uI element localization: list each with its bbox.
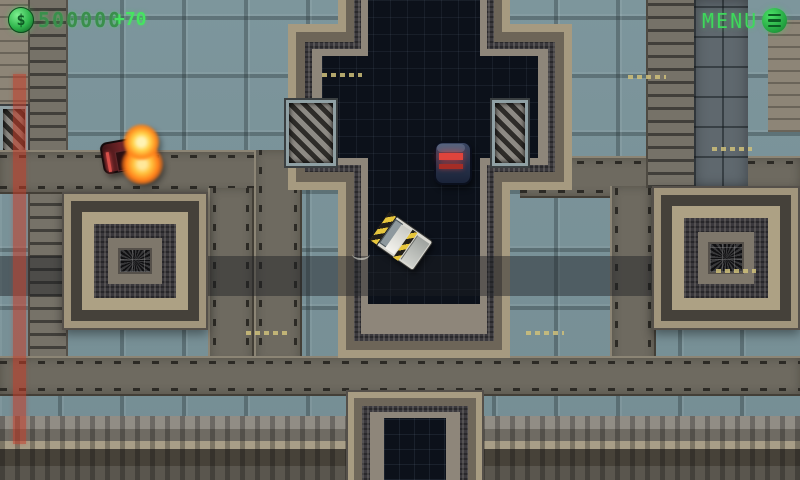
vent-structure-left [62,192,208,330]
panel-dash-marking [246,331,290,335]
enemy-car-dark [428,139,474,183]
car-light-bar [439,164,463,169]
ribbed-column-right [646,0,698,188]
hatch-vent-cross-right [492,100,528,166]
player-truck [368,208,432,272]
cross-building-bottom [346,384,484,480]
menu-hamburger-icon[interactable] [762,8,787,33]
vent-structure-right [652,186,800,330]
panel-dash-marking [716,269,756,273]
bottom-pit-navy [384,418,446,480]
panel-dash-marking [628,75,666,79]
fan-grate-icon [118,248,152,274]
enemy-car-burning [96,129,167,187]
panel-dash-marking [712,147,752,151]
car-light-bar [439,153,463,160]
panel-dash-marking [526,331,564,335]
menu-button-label[interactable]: MENU [702,9,758,33]
game-viewport[interactable]: $ 500000 +70 MENU [0,0,800,480]
panel-dash-marking [322,73,362,77]
hatch-vent-cross-left [286,100,336,166]
edge-panel-right [768,20,800,132]
